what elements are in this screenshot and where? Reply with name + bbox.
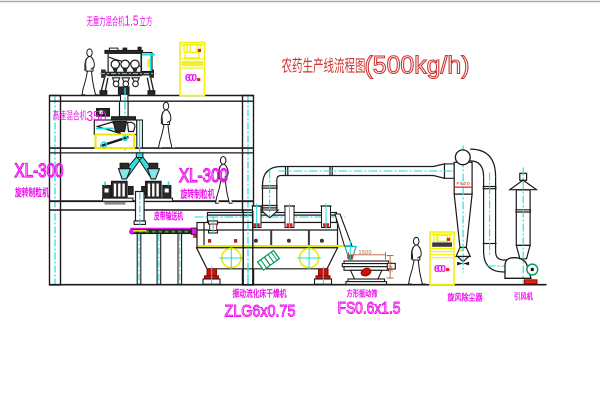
svg-text:545: 545 [388,262,394,273]
svg-text:振动流化床干燥机: 振动流化床干燥机 [233,288,287,300]
svg-text:方形振动筛: 方形振动筛 [347,289,378,299]
svg-text:(500kg/h): (500kg/h) [365,52,470,80]
svg-text:1500: 1500 [359,250,372,256]
svg-text:600: 600 [185,73,197,84]
svg-text:皮带输送机: 皮带输送机 [153,211,183,223]
svg-text:XL-300: XL-300 [15,160,64,182]
svg-text:600: 600 [434,264,446,275]
svg-text:农药生产线流程图: 农药生产线流程图 [282,57,366,76]
svg-text:旋转制粒机: 旋转制粒机 [14,186,49,199]
svg-text:XL-300: XL-300 [179,165,228,187]
svg-text:350: 350 [87,109,107,125]
svg-text:1.5: 1.5 [125,13,139,30]
svg-text:高速混合机: 高速混合机 [53,109,87,122]
svg-text:旋风除尘器: 旋风除尘器 [447,292,484,303]
svg-text:无重力混合机: 无重力混合机 [87,14,125,28]
svg-text:旋转制粒机: 旋转制粒机 [180,188,215,201]
svg-text:立方: 立方 [140,14,153,28]
svg-text:引风机: 引风机 [514,292,533,302]
svg-text:ZLG6x0.75: ZLG6x0.75 [225,303,296,321]
svg-text:FS0.6x1.5: FS0.6x1.5 [338,300,401,318]
